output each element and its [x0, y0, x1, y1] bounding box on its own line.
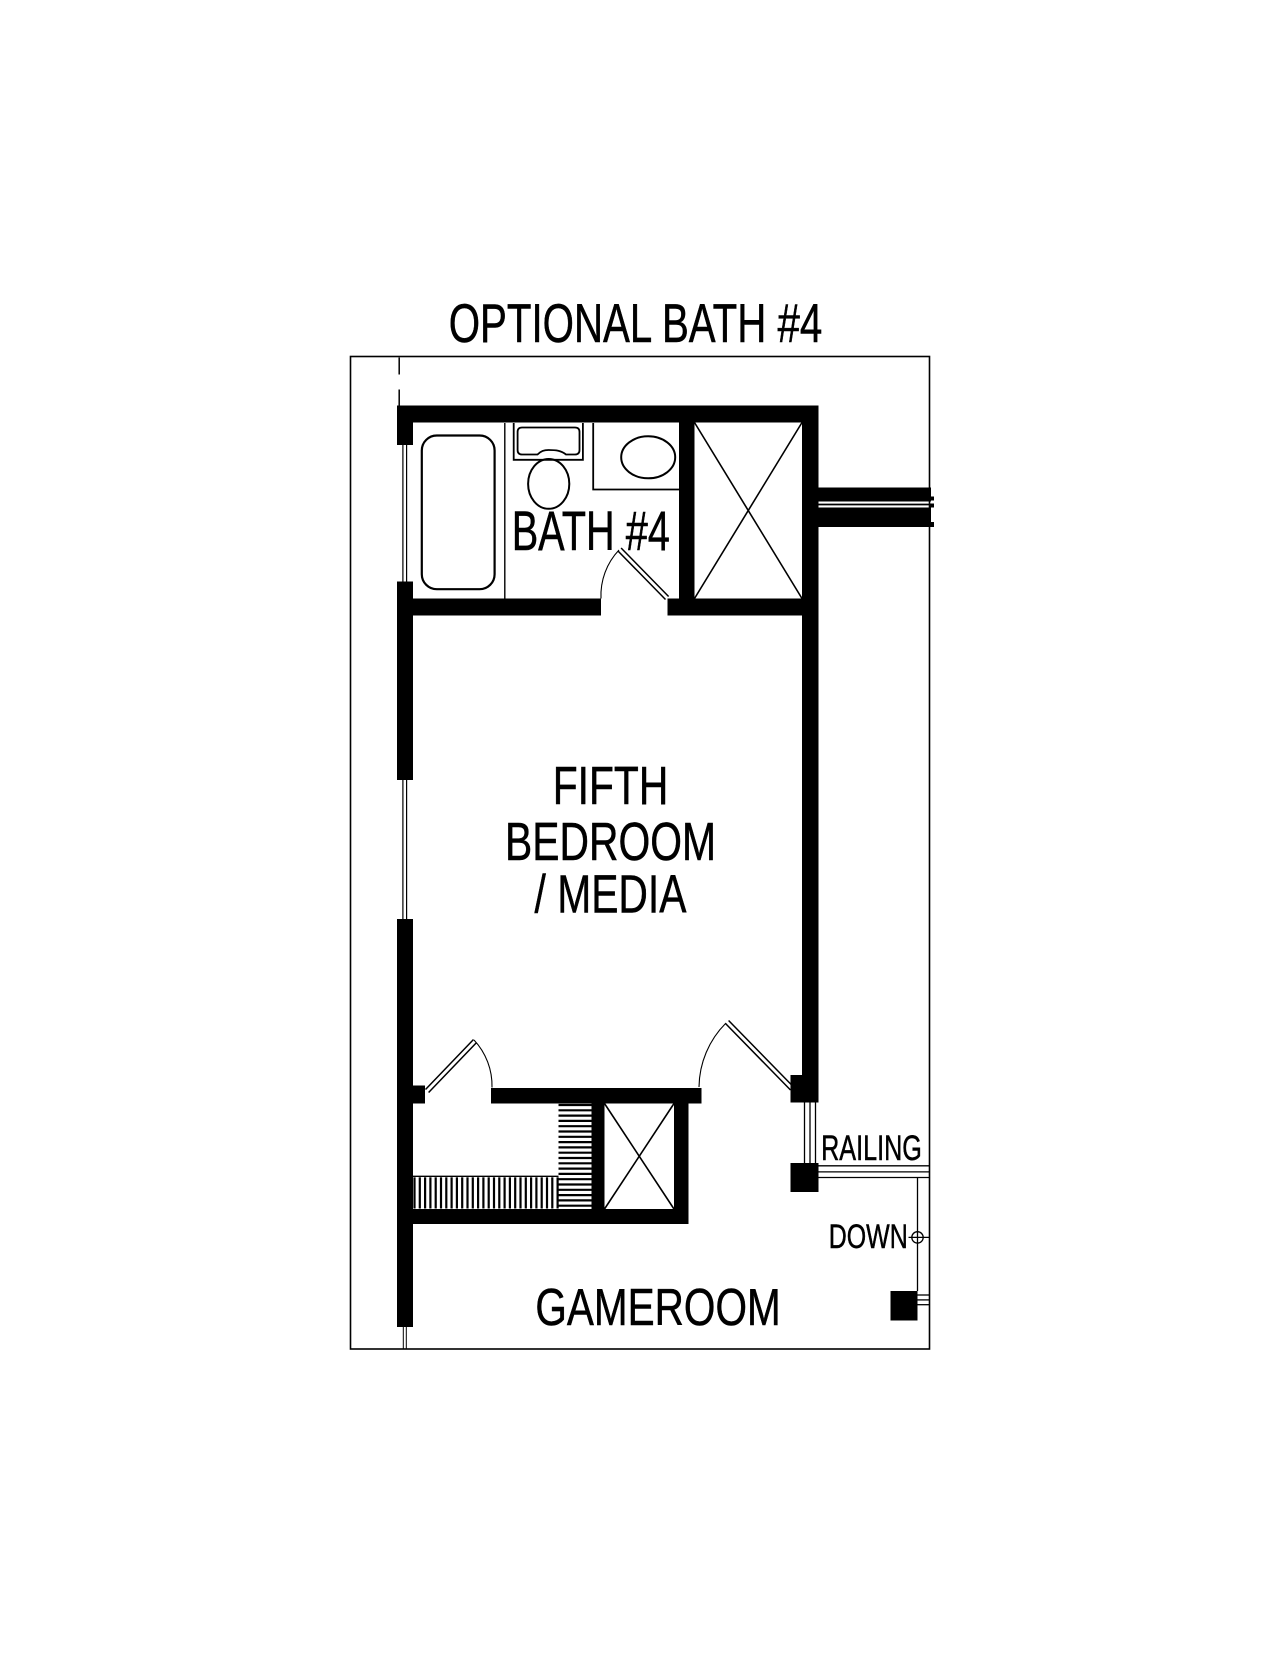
svg-text:BATH #4: BATH #4 — [512, 500, 670, 562]
svg-text:FIFTH: FIFTH — [553, 756, 669, 816]
svg-text:GAMEROOM: GAMEROOM — [535, 1278, 780, 1336]
svg-text:/ MEDIA: / MEDIA — [535, 865, 687, 925]
svg-text:DOWN: DOWN — [829, 1218, 908, 1256]
svg-text:BEDROOM: BEDROOM — [505, 812, 716, 872]
svg-text:OPTIONAL BATH #4: OPTIONAL BATH #4 — [449, 293, 823, 355]
svg-text:RAILING: RAILING — [821, 1130, 922, 1168]
